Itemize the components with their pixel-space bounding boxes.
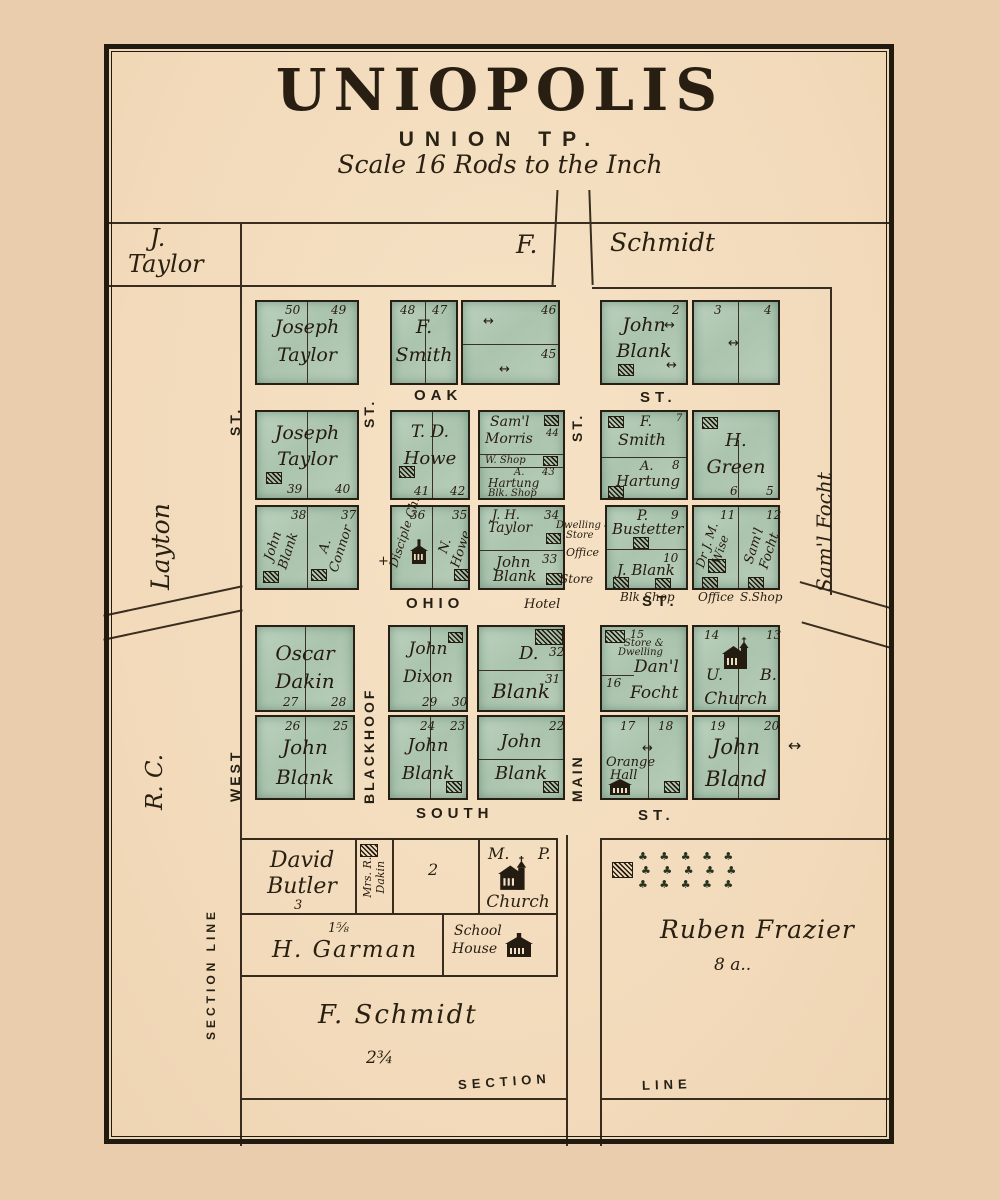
- lot-number: 47: [432, 303, 447, 317]
- owner-west-layton: Layton: [146, 450, 175, 590]
- building-icon: [266, 472, 282, 484]
- owner-label: B.: [760, 665, 777, 684]
- school-label: House: [452, 941, 497, 957]
- owner-label: Taylor: [257, 344, 357, 366]
- owner-label: Focht: [630, 683, 678, 703]
- parcel-john-bland: 19 20 John Bland: [692, 715, 780, 800]
- lot-number: 16: [606, 676, 621, 690]
- hotel-label: Hotel: [524, 597, 560, 612]
- section-line-west: [240, 1098, 566, 1100]
- lot-number: 48: [400, 303, 415, 317]
- owner-label: Morris: [485, 431, 533, 447]
- street-label-oak-st: ST.: [640, 389, 677, 406]
- building-icon: [702, 577, 718, 589]
- owner-east-saml-focht: Sam'l Focht: [812, 432, 836, 592]
- lot-number: 39: [287, 482, 302, 496]
- owner-label: Dan'l: [634, 657, 679, 677]
- owner-label: John: [479, 731, 563, 752]
- lot-number: 26: [285, 719, 300, 733]
- lot-number: 45: [541, 347, 556, 361]
- parcel-orange-hall: 17 18 ↔ Orange Hall: [600, 715, 688, 800]
- parcel-h-green: H. Green 6 5: [692, 410, 780, 500]
- main-st-lower-left-line: [566, 835, 568, 1146]
- building-icon: [454, 569, 470, 581]
- parcel-f-smith-n: 48 47 F. Smith: [390, 300, 458, 385]
- building-icon: [311, 569, 327, 581]
- building-icon: [543, 781, 559, 793]
- owner-label: Joseph: [257, 316, 357, 338]
- lot-number: 27: [283, 695, 298, 709]
- owner-label: Blank: [493, 567, 537, 585]
- blk-shop-label: Blk Shop: [620, 590, 675, 604]
- building-icon: [543, 456, 558, 466]
- building-icon: [608, 486, 624, 498]
- owner-label: Butler: [248, 874, 356, 899]
- lot-number: 41: [414, 484, 429, 498]
- owner-label: N. Howe: [433, 528, 473, 570]
- frazier-top-line: [600, 838, 890, 840]
- owner-line: Mrs. R.: [361, 849, 374, 905]
- plat-top-line-west: [108, 285, 556, 287]
- lot-number: 38: [291, 508, 306, 522]
- building-icon: [748, 577, 764, 589]
- lot-number: 5: [766, 484, 774, 498]
- lot-number: 28: [331, 695, 346, 709]
- lot-number: 46: [541, 303, 556, 317]
- street-label-oak: OAK: [414, 387, 462, 404]
- owner-label: Church: [478, 892, 558, 912]
- hotel-building-icon: [535, 629, 563, 645]
- lot-number: 13: [766, 628, 781, 642]
- parcel-wise-focht: 11 12 Dr J. M. Wise Sam'l Focht: [692, 505, 780, 590]
- orchard-row-icon: ♣ ♣ ♣ ♣ ♣: [638, 878, 737, 891]
- owner-line: Dakin: [374, 849, 387, 905]
- owner-nw-initial: J.: [150, 224, 165, 252]
- street-label-ohio: OHIO: [406, 595, 464, 612]
- scale-note: Scale 16 Rods to the Inch: [0, 150, 1000, 179]
- lot-number: 6: [730, 484, 738, 498]
- owner-label: Smith: [618, 430, 666, 449]
- owner-label: Blank: [479, 679, 563, 703]
- lot-number: 32: [549, 645, 564, 659]
- township-subtitle: UNION TP.: [0, 128, 1000, 152]
- orchard-row-icon: ♣ ♣ ♣ ♣ ♣: [641, 864, 740, 877]
- arrow-icon: ↔: [483, 314, 493, 329]
- street-label-west-st: ST.: [227, 402, 243, 436]
- north-boundary-line: [108, 222, 892, 224]
- parcel-ub-church: 14 13 U. B. Church: [692, 625, 780, 712]
- s-shop-label: S.Shop: [740, 590, 782, 604]
- lot-number: 17: [620, 719, 635, 733]
- lot-number: 23: [450, 719, 465, 733]
- building-icon: [446, 781, 462, 793]
- lot-number: 8: [672, 458, 680, 472]
- owner-label: Blank: [257, 765, 353, 789]
- owner-label: F.: [640, 414, 652, 430]
- lot-number: 25: [333, 719, 348, 733]
- owner-label: Dixon: [390, 667, 466, 687]
- office-label: Office: [566, 546, 599, 559]
- lot-number: 12: [766, 508, 781, 522]
- building-icon: [618, 364, 634, 376]
- property-line: [240, 222, 242, 285]
- owner-label: H.: [694, 430, 778, 451]
- owner-west-rc: R. C.: [142, 690, 168, 810]
- owner-label: Smith: [392, 344, 456, 366]
- parcel-smith-hartung: F. 7 Smith A. 8 Hartung: [600, 410, 688, 500]
- owner-label: David: [252, 848, 352, 873]
- arrow-icon: ↔: [642, 741, 652, 756]
- owner-label: John: [257, 735, 353, 759]
- owner-label-ruben-frazier: Ruben Frazier: [660, 915, 855, 944]
- street-label-main: MAIN: [569, 718, 585, 802]
- street-label-blackhoof-st: ST.: [361, 394, 377, 428]
- parcel-john-blank-sw: 26 25 John Blank: [255, 715, 355, 800]
- lot-number: 24: [420, 719, 435, 733]
- school-label: School: [454, 923, 502, 939]
- lot-number: 40: [335, 482, 350, 496]
- acreage-label: 2¾: [366, 1048, 393, 1068]
- orchard-row-icon: ♣ ♣ ♣ ♣ ♣: [638, 850, 737, 863]
- main-st-lower-right-line: [600, 838, 602, 1146]
- lot-number: 29: [422, 695, 437, 709]
- building-icon: [605, 630, 625, 643]
- building-icon: [664, 781, 680, 793]
- street-label-blackhoof: BLACKHOOF: [361, 668, 377, 804]
- office-label: Office: [698, 590, 734, 604]
- lot-number: 49: [331, 303, 346, 317]
- arrow-icon: ↔: [499, 362, 509, 377]
- street-label-south-st: ST.: [638, 807, 675, 824]
- owner-label: John: [390, 735, 466, 756]
- church-icon: [720, 637, 754, 671]
- parcel-john-blank-s-mid: 24 23 John Blank: [388, 715, 468, 800]
- lot-number: 19: [710, 719, 725, 733]
- parcel-john-blank-n-east: 3 4 ↔: [692, 300, 780, 385]
- owner-label: Oscar: [257, 641, 353, 665]
- parcel-disciple-church-howe: 36 35 Disciple Ch. N. Howe: [390, 505, 470, 590]
- building-icon: [608, 416, 624, 428]
- lot-number: 42: [450, 484, 465, 498]
- hall-icon: [608, 779, 632, 795]
- lot-number: 2: [428, 860, 438, 879]
- section-line-vertical-label: SECTION LINE: [204, 840, 218, 1040]
- map-canvas: UNIOPOLIS UNION TP. Scale 16 Rods to the…: [0, 0, 1000, 1200]
- owner-label: Hartung: [616, 472, 680, 490]
- street-label-south: SOUTH: [416, 805, 494, 822]
- parcel-joseph-taylor-n: 50 49 Joseph Taylor: [255, 300, 359, 385]
- parcel-john-dixon: John Dixon 29 30: [388, 625, 468, 712]
- lot-number: 20: [764, 719, 779, 733]
- parcel-td-howe: T. D. Howe 41 42: [390, 410, 470, 500]
- owner-label: Sam'l Focht: [741, 525, 783, 573]
- owner-label: A. Connor: [311, 523, 354, 574]
- arrow-icon: ↔: [788, 736, 800, 755]
- street-label-west: WEST: [227, 722, 243, 802]
- building-icon: [708, 559, 726, 573]
- lot-number: 14: [704, 628, 719, 642]
- lot-number: 3: [714, 303, 722, 317]
- owner-label: H. Garman: [272, 937, 418, 963]
- lot-number: 4: [764, 303, 772, 317]
- owner-label: Bland: [694, 767, 778, 791]
- owner-label: Church: [694, 689, 778, 709]
- owner-label: Mrs. R. Dakin: [361, 849, 387, 905]
- building-icon: [702, 417, 718, 429]
- section-line-east: [600, 1098, 890, 1100]
- dwelling-store-label: Store: [566, 530, 594, 541]
- parcel-saml-morris-strip: Sam'l Morris 44 W. Shop A. 43 Hartung Bl…: [478, 410, 565, 500]
- parcel-d-blank-hotel: D. 32 31 Blank: [477, 625, 565, 712]
- owner-label: P.: [538, 844, 551, 863]
- lot-number: 3: [294, 898, 302, 913]
- owner-label: John: [390, 639, 466, 659]
- acreage-label: 1⅝: [328, 921, 349, 936]
- acreage-label: 8 a..: [714, 955, 751, 975]
- building-icon: [613, 577, 629, 589]
- street-label-main-st: ST.: [569, 408, 585, 442]
- owner-top-f: F.: [516, 230, 537, 259]
- butler-parcel-box: David Butler 3 Mrs. R. Dakin 2 M. P. Chu…: [240, 838, 558, 915]
- owner-label: T. D.: [392, 422, 468, 442]
- owner-label: Taylor: [488, 520, 532, 536]
- lot-number: 30: [452, 695, 467, 709]
- owner-label: Green: [694, 456, 778, 478]
- church-icon: [406, 539, 432, 565]
- owner-top-schmidt: Schmidt: [610, 228, 715, 257]
- building-icon: [263, 571, 279, 583]
- store-label: Store: [560, 572, 593, 586]
- building-icon: [399, 466, 415, 478]
- owner-label: Dakin: [257, 669, 353, 693]
- shop-label: W. Shop: [485, 455, 526, 466]
- arrow-icon: ↔: [666, 358, 676, 373]
- lot-number: 50: [285, 303, 300, 317]
- building-icon: [546, 533, 561, 544]
- lot-number: 44: [546, 428, 559, 439]
- arrow-icon: ↔: [664, 318, 674, 333]
- arrow-icon: ↔: [728, 336, 738, 351]
- parcel-joseph-taylor-s: Joseph Taylor 39 40: [255, 410, 359, 500]
- lot-number: 11: [720, 508, 735, 522]
- owner-label: John Blank: [259, 523, 302, 574]
- schoolhouse-icon: [504, 933, 534, 959]
- garman-parcel-box: 1⅝ H. Garman School House: [240, 915, 558, 977]
- owner-label: F.: [392, 316, 456, 338]
- church-icon: [496, 856, 532, 892]
- plat-top-line-east: [592, 287, 832, 289]
- owner-label: Taylor: [257, 448, 357, 470]
- parcel-blank-connor: 38 37 John Blank A. Connor: [255, 505, 359, 590]
- parcel-oscar-dakin: Oscar Dakin 27 28: [255, 625, 355, 712]
- lot-number: 18: [658, 719, 673, 733]
- lot-number: 43: [542, 467, 555, 478]
- parcel-john-blank-n: 2 John Blank ↔ ↔: [600, 300, 688, 385]
- owner-label: John: [694, 735, 778, 759]
- lot-number: 33: [542, 552, 557, 566]
- parcel-john-blank-s-east: 22 John Blank: [477, 715, 565, 800]
- shop-label: Blk. Shop: [488, 488, 537, 499]
- street-label-line: LINE: [642, 1076, 692, 1093]
- building-icon: [544, 415, 559, 426]
- cross-icon: +: [378, 554, 388, 569]
- lot-number: 7: [676, 413, 682, 424]
- owner-label: D.: [519, 643, 539, 664]
- building-icon: [633, 537, 649, 549]
- lot-number: 37: [341, 508, 356, 522]
- owner-nw-name: Taylor: [128, 250, 204, 278]
- building-icon: [655, 578, 671, 590]
- page-title: UNIOPOLIS: [0, 56, 1000, 124]
- building-icon: [612, 862, 633, 878]
- parcel-danl-focht: 15 Store & Dwelling Dan'l 16 Focht: [600, 625, 688, 712]
- owner-label-f-schmidt: F. Schmidt: [318, 1000, 478, 1030]
- owner-label: Bustetter: [612, 520, 683, 538]
- owner-label: Sam'l: [490, 414, 530, 430]
- parcel-f-smith-n-east: 46 45 ↔ ↔: [461, 300, 560, 385]
- lot-number: 35: [452, 508, 467, 522]
- owner-label: Joseph: [257, 422, 357, 444]
- parcel-bustetter-blank: P. 9 Bustetter 10 J. Blank: [605, 505, 688, 590]
- parcel-jh-taylor-blank: J. H. 34 Taylor John 33 Blank: [478, 505, 565, 590]
